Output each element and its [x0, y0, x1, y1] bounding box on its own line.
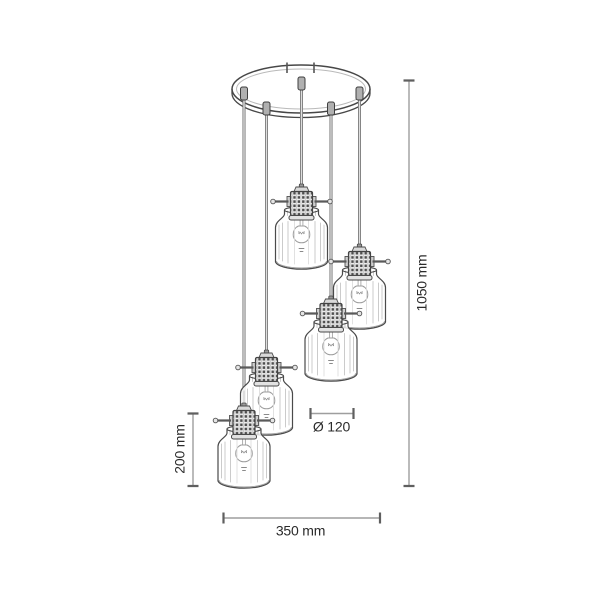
- cord-2: [356, 87, 363, 248]
- lamp-technical-drawing: [0, 0, 600, 600]
- cord-4: [263, 102, 270, 354]
- cord-5: [241, 87, 248, 407]
- shade-diameter-label: Ø 120: [313, 419, 350, 434]
- pendant-shades: [213, 184, 390, 488]
- lamp-dimension-diagram: 1050 mm 200 mm Ø 120 350 mm: [0, 0, 600, 600]
- cord-grip-1: [298, 77, 305, 90]
- shade-height-label: 200 mm: [172, 424, 187, 473]
- cord-grip-5: [241, 87, 248, 100]
- total-height-label: 1050 mm: [414, 255, 429, 312]
- dim-shade-height-line: [188, 414, 199, 487]
- cord-grip-3: [328, 102, 335, 115]
- cord-grip-2: [356, 87, 363, 100]
- overall-width-label: 350 mm: [276, 523, 325, 538]
- cord-grip-4: [263, 102, 270, 115]
- pendant-shade-1: [271, 184, 333, 269]
